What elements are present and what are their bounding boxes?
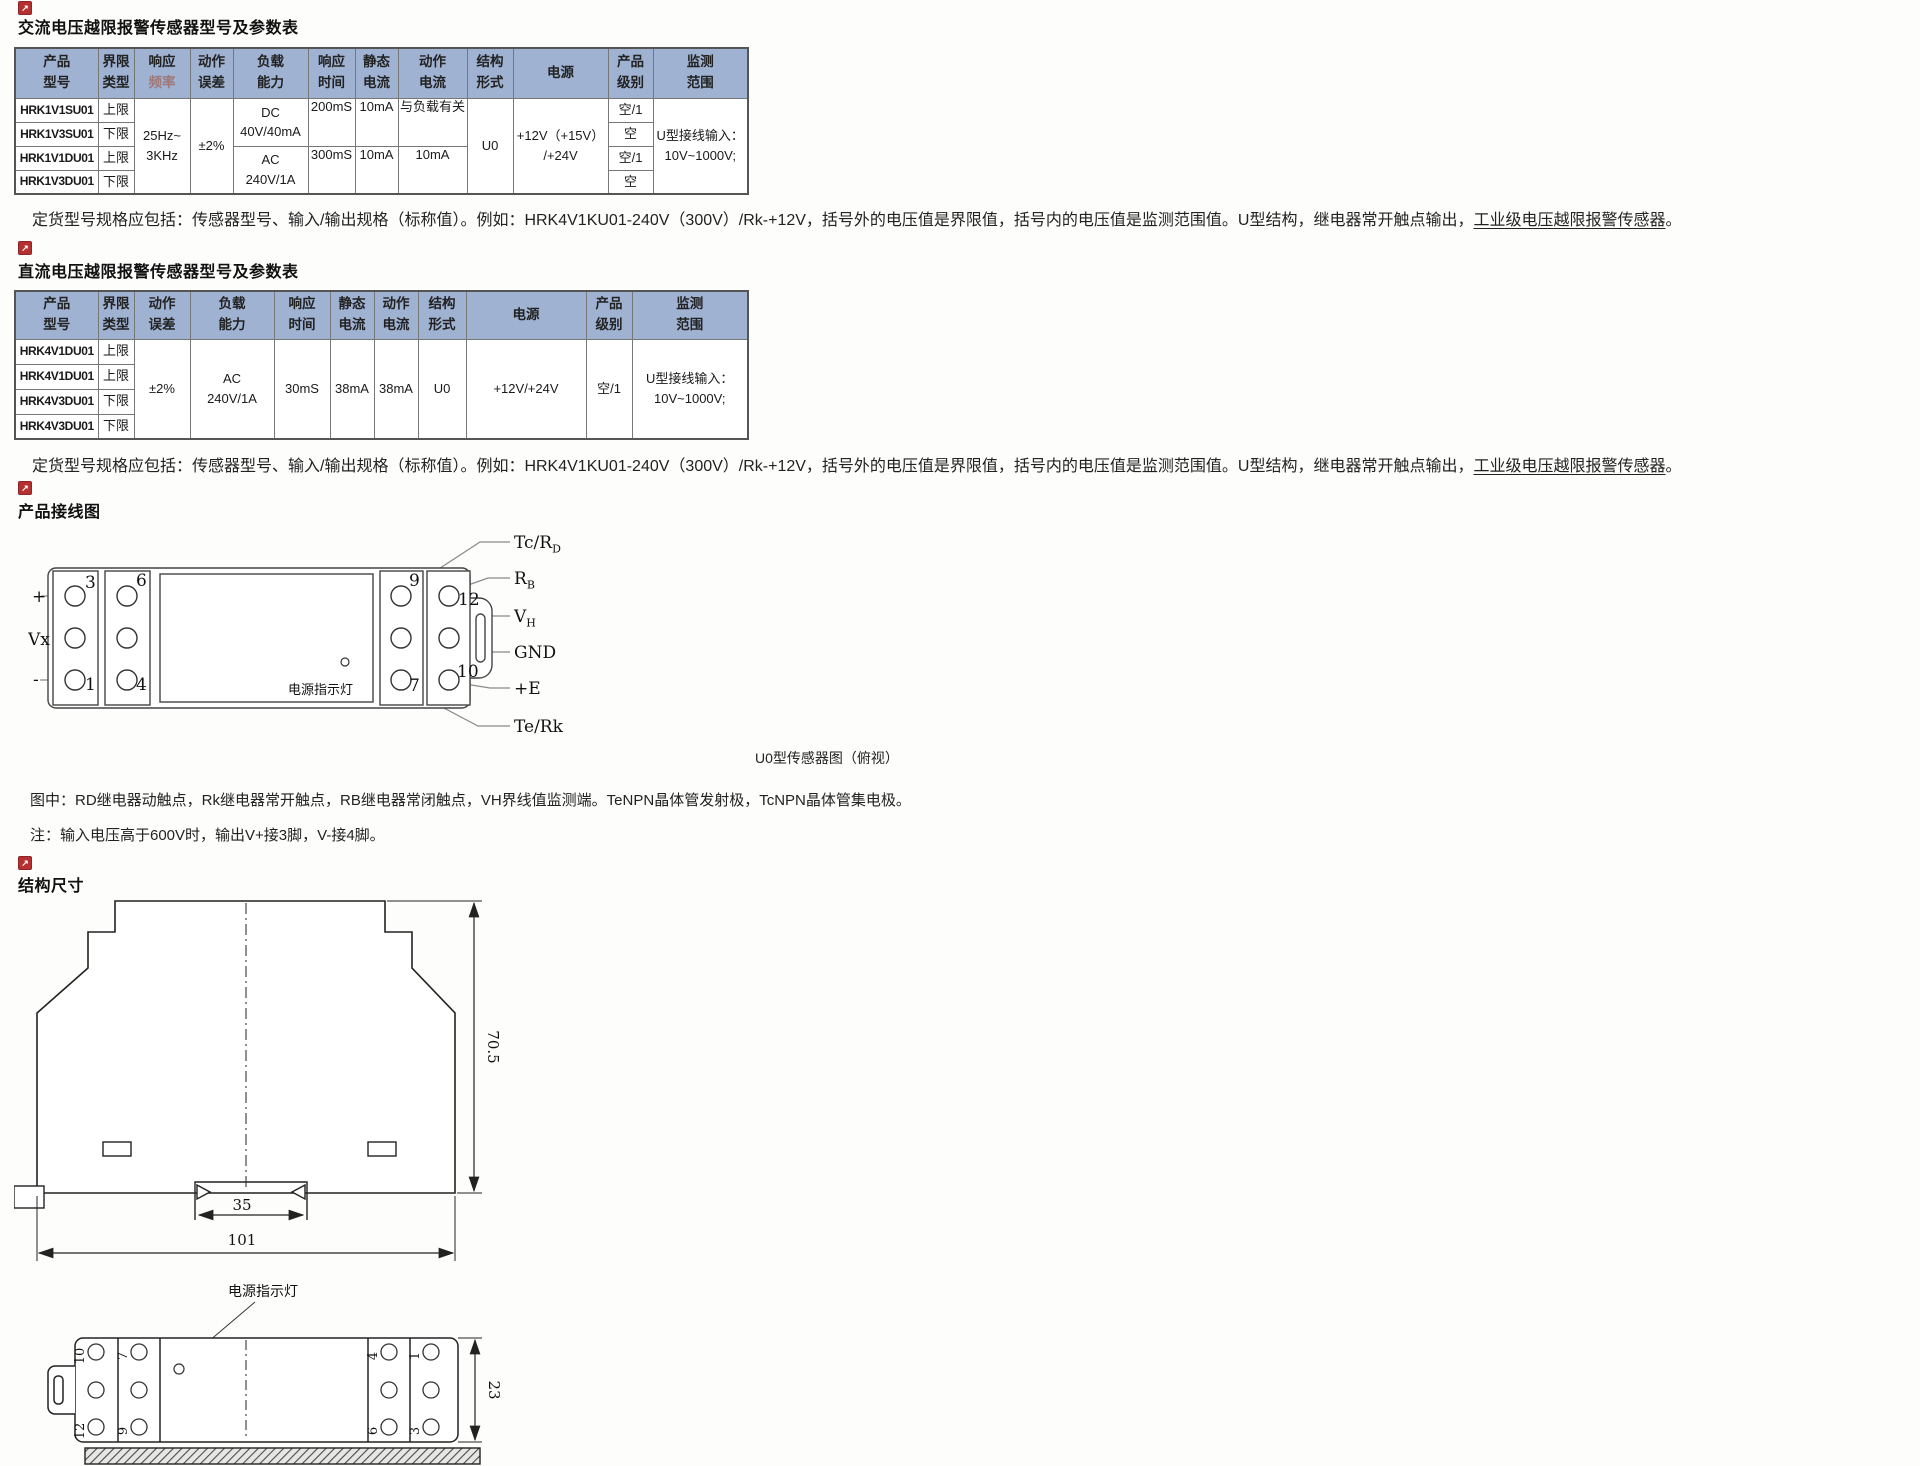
error-cell: ±2% bbox=[190, 98, 233, 194]
attachment-icon: ↗ bbox=[18, 1, 32, 15]
output-label-terk: Te/Rk bbox=[514, 717, 563, 739]
header-cell: 动作误差 bbox=[134, 291, 190, 339]
action-cell: 与负载有关 bbox=[398, 98, 467, 146]
pin-3: 3 bbox=[85, 573, 96, 593]
header-cell: 结构形式 bbox=[467, 48, 513, 98]
input-labels: + Vx - bbox=[28, 587, 50, 690]
load-cell: DC40V/40mA bbox=[233, 98, 308, 146]
model-cell: HRK4V1DU01 bbox=[15, 339, 98, 364]
static-cell: 10mA bbox=[355, 98, 398, 146]
pin-12: 12 bbox=[458, 590, 480, 610]
header-cell: 响应时间 bbox=[308, 48, 355, 98]
vx-label: Vx bbox=[28, 630, 50, 650]
document-page: ↗ 交流电压越限报警传感器型号及参数表 产品型号 界限类型 响应频率 动作误差 … bbox=[0, 0, 1920, 1466]
ordering-note-ac: 定货型号规格应包括：传感器型号、输入/输出规格（标称值）。例如：HRK4V1KU… bbox=[32, 206, 1682, 230]
header-cell: 动作电流 bbox=[398, 48, 467, 98]
ordering-note-dc: 定货型号规格应包括：传感器型号、输入/输出规格（标称值）。例如：HRK4V1KU… bbox=[32, 452, 1682, 476]
header-cell: 负载能力 bbox=[190, 291, 274, 339]
pin-1: 1 bbox=[85, 675, 96, 695]
dim-35: 35 bbox=[232, 1196, 251, 1214]
header-cell: 监测范围 bbox=[653, 48, 748, 98]
vent-window-right bbox=[368, 1142, 396, 1156]
table-row: HRK1V1SU01 上限 25Hz~3KHz ±2% DC40V/40mA 2… bbox=[15, 98, 748, 122]
pin-7: 7 bbox=[409, 676, 420, 696]
led-label: 电源指示灯 bbox=[228, 1283, 298, 1299]
model-cell: HRK1V3SU01 bbox=[15, 122, 98, 146]
static-cell: 10mA bbox=[355, 146, 398, 194]
pin-6: 6 bbox=[136, 571, 147, 591]
pin-10: 10 bbox=[73, 1348, 88, 1365]
header-cell: 响应时间 bbox=[274, 291, 330, 339]
pin-4: 4 bbox=[366, 1352, 381, 1360]
header-cell: 监测范围 bbox=[632, 291, 748, 339]
limit-cell: 上限 bbox=[98, 146, 134, 170]
pin-1: 1 bbox=[408, 1352, 423, 1360]
table-header-row: 产品型号 界限类型 动作误差 负载能力 响应时间 静态电流 动作电流 结构形式 … bbox=[15, 291, 748, 339]
header-cell: 静态电流 bbox=[330, 291, 374, 339]
vent-window-left bbox=[103, 1142, 131, 1156]
range-cell: U型接线输入：10V~1000V; bbox=[632, 339, 748, 439]
grade-cell: 空 bbox=[608, 170, 653, 194]
wiring-legend: 图中：RD继电器动触点，Rk继电器常开触点，RB继电器常闭触点，VH界线值监测端… bbox=[30, 789, 911, 810]
plus-label: + bbox=[32, 587, 46, 607]
header-cell: 产品级别 bbox=[586, 291, 632, 339]
dim-70-5: 70.5 bbox=[484, 1030, 502, 1063]
model-cell: HRK1V1SU01 bbox=[15, 98, 98, 122]
power-cell: +12V（+15V）/+24V bbox=[513, 98, 608, 194]
table-row: HRK1V1DU01 上限 AC240V/1A 300mS 10mA 10mA … bbox=[15, 146, 748, 170]
limit-cell: 下限 bbox=[98, 414, 134, 439]
output-label-vh: VH bbox=[514, 607, 536, 629]
ac-spec-table: 产品型号 界限类型 响应频率 动作误差 负载能力 响应时间 静态电流 动作电流 … bbox=[14, 47, 749, 195]
structure-cell: U0 bbox=[418, 339, 466, 439]
pin-3: 3 bbox=[408, 1427, 423, 1435]
limit-cell: 下限 bbox=[98, 389, 134, 414]
time-cell: 200mS bbox=[308, 98, 355, 146]
load-cell: AC240V/1A bbox=[233, 146, 308, 194]
pin-9: 9 bbox=[409, 571, 420, 591]
pin-4: 4 bbox=[136, 675, 147, 695]
profile-drawing: 35 101 70.5 bbox=[14, 893, 614, 1273]
error-cell: ±2% bbox=[134, 339, 190, 439]
model-cell: HRK4V3DU01 bbox=[15, 389, 98, 414]
top-view-drawing: 电源指示灯 10 7 12 9 4 1 6 bbox=[10, 1280, 610, 1466]
wiring-diagram: 3 6 1 4 9 12 7 10 + Vx - 电源指示灯 bbox=[28, 528, 588, 753]
output-label-tcrd: Tc/RD bbox=[514, 533, 561, 555]
header-cell: 动作电流 bbox=[374, 291, 418, 339]
led-label: 电源指示灯 bbox=[288, 682, 353, 697]
model-cell: HRK1V3DU01 bbox=[15, 170, 98, 194]
limit-cell: 上限 bbox=[98, 98, 134, 122]
limit-cell: 下限 bbox=[98, 122, 134, 146]
model-cell: HRK4V3DU01 bbox=[15, 414, 98, 439]
clip-slot bbox=[54, 1376, 63, 1404]
output-label-rb: RB bbox=[514, 569, 535, 591]
power-led bbox=[341, 658, 349, 666]
sensor-module-body bbox=[48, 568, 492, 708]
grade-cell: 空 bbox=[608, 122, 653, 146]
din-clip-tab bbox=[14, 1186, 44, 1208]
header-cell: 产品型号 bbox=[15, 48, 98, 98]
grade-cell: 空/1 bbox=[608, 146, 653, 170]
limit-cell: 上限 bbox=[98, 339, 134, 364]
static-cell: 38mA bbox=[330, 339, 374, 439]
pin-9: 9 bbox=[116, 1427, 131, 1435]
header-cell: 静态电流 bbox=[355, 48, 398, 98]
grade-cell: 空/1 bbox=[608, 98, 653, 122]
header-cell: 动作误差 bbox=[190, 48, 233, 98]
header-cell: 产品级别 bbox=[608, 48, 653, 98]
pin-6: 6 bbox=[366, 1427, 381, 1435]
header-cell: 结构形式 bbox=[418, 291, 466, 339]
section-title-ac: 交流电压越限报警传感器型号及参数表 bbox=[18, 14, 299, 38]
power-led bbox=[174, 1364, 184, 1374]
header-cell: 响应频率 bbox=[134, 48, 190, 98]
action-cell: 10mA bbox=[398, 146, 467, 194]
structure-cell: U0 bbox=[467, 98, 513, 194]
section-title-dc: 直流电压越限报警传感器型号及参数表 bbox=[18, 258, 299, 282]
header-cell: 界限类型 bbox=[98, 48, 134, 98]
time-cell: 300mS bbox=[308, 146, 355, 194]
header-cell: 产品型号 bbox=[15, 291, 98, 339]
time-cell: 30mS bbox=[274, 339, 330, 439]
model-cell: HRK1V1DU01 bbox=[15, 146, 98, 170]
minus-label: - bbox=[33, 670, 39, 690]
dim-101: 101 bbox=[228, 1231, 257, 1249]
table-header-row: 产品型号 界限类型 响应频率 动作误差 负载能力 响应时间 静态电流 动作电流 … bbox=[15, 48, 748, 98]
power-cell: +12V/+24V bbox=[466, 339, 586, 439]
model-cell: HRK4V1DU01 bbox=[15, 364, 98, 389]
dc-spec-table: 产品型号 界限类型 动作误差 负载能力 响应时间 静态电流 动作电流 结构形式 … bbox=[14, 290, 749, 440]
attachment-icon: ↗ bbox=[18, 241, 32, 255]
header-cell: 电源 bbox=[513, 48, 608, 98]
header-cell: 负载能力 bbox=[233, 48, 308, 98]
pin-12: 12 bbox=[73, 1423, 88, 1440]
section-title-wiring: 产品接线图 bbox=[18, 498, 101, 522]
diagram-caption: U0型传感器图（俯视） bbox=[755, 748, 899, 768]
header-cell: 电源 bbox=[466, 291, 586, 339]
output-label-gnd: GND bbox=[514, 643, 556, 665]
limit-cell: 下限 bbox=[98, 170, 134, 194]
header-cell: 界限类型 bbox=[98, 291, 134, 339]
load-cell: AC240V/1A bbox=[190, 339, 274, 439]
clip-slot bbox=[476, 614, 485, 662]
table-row: HRK4V1DU01 上限 ±2% AC240V/1A 30mS 38mA 38… bbox=[15, 339, 748, 364]
output-label-e: +E bbox=[514, 679, 541, 701]
freq-cell: 25Hz~3KHz bbox=[134, 98, 190, 194]
dim-23: 23 bbox=[485, 1380, 503, 1399]
pin-7: 7 bbox=[116, 1352, 131, 1360]
grade-cell: 空/1 bbox=[586, 339, 632, 439]
range-cell: U型接线输入：10V~1000V; bbox=[653, 98, 748, 194]
wiring-note: 注：输入电压高于600V时，输出V+接3脚，V-接4脚。 bbox=[30, 824, 385, 845]
din-rail-section bbox=[85, 1448, 480, 1464]
action-cell: 38mA bbox=[374, 339, 418, 439]
pin-10: 10 bbox=[457, 662, 479, 682]
attachment-icon: ↗ bbox=[18, 481, 32, 495]
attachment-icon: ↗ bbox=[18, 856, 32, 870]
limit-cell: 上限 bbox=[98, 364, 134, 389]
